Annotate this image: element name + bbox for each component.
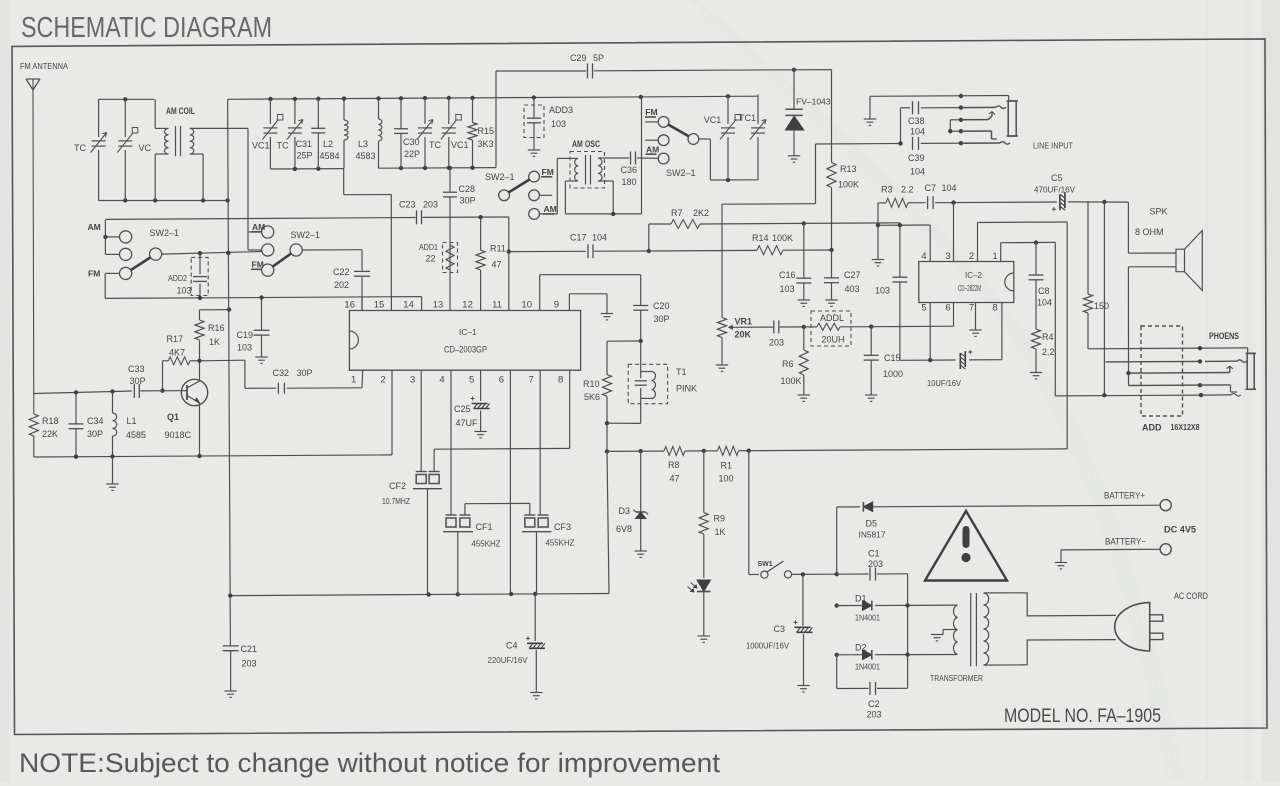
- svg-text:3: 3: [945, 251, 950, 262]
- svg-text:C15: C15: [884, 353, 901, 363]
- svg-text:103: 103: [177, 286, 192, 296]
- svg-text:R14: R14: [752, 233, 769, 243]
- svg-text:L3: L3: [358, 139, 368, 149]
- svg-text:SW2–1: SW2–1: [150, 228, 180, 238]
- svg-text:T1: T1: [676, 367, 687, 377]
- svg-text:20UH: 20UH: [822, 335, 845, 345]
- svg-text:47UF: 47UF: [456, 418, 479, 428]
- svg-text:202: 202: [334, 280, 349, 290]
- svg-text:FV–1043: FV–1043: [796, 97, 831, 107]
- svg-text:R8: R8: [668, 460, 680, 470]
- svg-text:SW1: SW1: [758, 561, 773, 568]
- svg-text:3: 3: [410, 375, 415, 386]
- svg-text:R16: R16: [208, 323, 225, 333]
- svg-text:TC: TC: [277, 141, 289, 151]
- svg-text:8 OHM: 8 OHM: [1135, 227, 1164, 237]
- svg-text:C20: C20: [653, 301, 670, 311]
- svg-text:8: 8: [558, 375, 563, 386]
- svg-text:C3: C3: [774, 624, 786, 634]
- svg-text:100K: 100K: [781, 376, 802, 386]
- svg-text:R15: R15: [478, 126, 495, 136]
- svg-text:103: 103: [875, 286, 890, 296]
- svg-text:10UF/16V: 10UF/16V: [927, 378, 961, 388]
- svg-text:104: 104: [910, 127, 925, 137]
- svg-text:VR1: VR1: [735, 317, 753, 327]
- svg-text:6V8: 6V8: [616, 524, 632, 534]
- svg-text:SPK: SPK: [1150, 207, 1168, 217]
- svg-text:C7: C7: [925, 183, 937, 193]
- svg-text:203: 203: [242, 659, 257, 669]
- svg-text:12: 12: [462, 300, 473, 311]
- svg-text:R7: R7: [671, 208, 683, 218]
- svg-text:14: 14: [403, 300, 414, 311]
- svg-text:AM: AM: [252, 222, 265, 232]
- svg-text:R10: R10: [583, 379, 600, 389]
- svg-text:25P: 25P: [297, 151, 313, 161]
- svg-text:C39: C39: [908, 153, 925, 163]
- svg-text:13: 13: [433, 300, 444, 311]
- svg-text:30P: 30P: [87, 429, 103, 439]
- svg-text:BATTERY+: BATTERY+: [1104, 491, 1145, 501]
- svg-text:203: 203: [423, 200, 438, 210]
- svg-text:150: 150: [1094, 301, 1109, 311]
- svg-text:R6: R6: [782, 359, 794, 369]
- svg-text:LINE INPUT: LINE INPUT: [1033, 141, 1074, 151]
- svg-text:100K: 100K: [838, 180, 859, 190]
- svg-text:FM: FM: [252, 260, 264, 270]
- svg-text:10.7MHZ: 10.7MHZ: [382, 496, 410, 506]
- svg-text:DC 4V5: DC 4V5: [1164, 525, 1196, 535]
- svg-text:104: 104: [910, 167, 925, 177]
- svg-text:30P: 30P: [654, 314, 670, 324]
- svg-text:470UF/16V: 470UF/16V: [1034, 185, 1075, 195]
- svg-text:C16: C16: [779, 270, 796, 280]
- svg-text:1: 1: [992, 251, 997, 262]
- svg-text:C5: C5: [1051, 173, 1063, 183]
- svg-text:15: 15: [374, 300, 385, 311]
- svg-text:Q1: Q1: [167, 412, 179, 422]
- svg-text:22P: 22P: [404, 149, 420, 159]
- svg-text:C27: C27: [844, 270, 861, 280]
- svg-text:1: 1: [351, 375, 356, 386]
- svg-text:100K: 100K: [772, 233, 793, 243]
- svg-text:AC CORD: AC CORD: [1174, 591, 1208, 601]
- svg-text:D3: D3: [619, 506, 631, 516]
- svg-text:C4: C4: [506, 641, 518, 651]
- svg-text:ADD1: ADD1: [419, 242, 438, 252]
- svg-text:TC1: TC1: [739, 113, 756, 123]
- svg-text:4584: 4584: [320, 151, 340, 161]
- svg-text:103: 103: [551, 119, 566, 129]
- svg-text:103: 103: [780, 284, 795, 294]
- svg-text:C31: C31: [296, 139, 313, 149]
- svg-text:C23: C23: [399, 200, 416, 210]
- svg-text:2.2: 2.2: [1042, 347, 1055, 357]
- svg-text:FM: FM: [542, 167, 554, 177]
- svg-text:C19: C19: [237, 330, 254, 340]
- svg-text:C36: C36: [621, 165, 638, 175]
- svg-text:SW2–1: SW2–1: [666, 168, 696, 178]
- svg-text:30P: 30P: [297, 368, 313, 378]
- svg-text:C22: C22: [333, 267, 350, 277]
- svg-text:1K: 1K: [715, 527, 726, 537]
- svg-text:CF2: CF2: [389, 481, 406, 491]
- svg-text:IN5817: IN5817: [859, 530, 886, 540]
- svg-text:2: 2: [969, 251, 974, 262]
- svg-text:FM: FM: [88, 269, 100, 279]
- svg-text:22K: 22K: [42, 429, 58, 439]
- svg-text:IC–2: IC–2: [965, 271, 982, 280]
- svg-text:455KHZ: 455KHZ: [472, 539, 501, 549]
- svg-text:3K3: 3K3: [478, 139, 494, 149]
- svg-text:C38: C38: [908, 116, 925, 126]
- svg-text:R18: R18: [42, 416, 59, 426]
- svg-text:103: 103: [237, 343, 252, 353]
- svg-text:PHOENS: PHOENS: [1209, 331, 1239, 341]
- svg-text:C2: C2: [868, 699, 880, 709]
- svg-text:TRANSFORMER: TRANSFORMER: [930, 673, 983, 683]
- svg-text:7: 7: [529, 375, 534, 386]
- svg-text:22: 22: [426, 254, 436, 264]
- svg-text:IC–1: IC–1: [459, 327, 477, 337]
- svg-text:100: 100: [719, 474, 734, 484]
- svg-text:104: 104: [942, 183, 957, 193]
- svg-text:104: 104: [1037, 298, 1052, 308]
- svg-text:1N4001: 1N4001: [855, 612, 880, 622]
- svg-text:7: 7: [969, 303, 974, 314]
- svg-text:5K6: 5K6: [584, 392, 600, 402]
- svg-text:5: 5: [921, 303, 926, 314]
- svg-text:R1: R1: [721, 461, 733, 471]
- svg-text:VC: VC: [139, 143, 152, 153]
- svg-text:FM: FM: [645, 107, 657, 117]
- svg-text:455KHZ: 455KHZ: [546, 538, 575, 548]
- svg-text:AM: AM: [544, 204, 557, 214]
- svg-text:SW2–1: SW2–1: [485, 172, 515, 182]
- svg-text:203: 203: [867, 710, 882, 720]
- svg-text:R4: R4: [1042, 332, 1054, 342]
- svg-text:6: 6: [945, 303, 950, 314]
- svg-text:5: 5: [469, 375, 474, 386]
- svg-text:1K: 1K: [209, 337, 220, 347]
- svg-text:C34: C34: [87, 416, 104, 426]
- svg-text:MODEL NO. FA–1905: MODEL NO. FA–1905: [1004, 705, 1161, 727]
- svg-text:2.2: 2.2: [901, 185, 914, 195]
- svg-text:47: 47: [492, 260, 502, 270]
- svg-text:9018C: 9018C: [165, 430, 192, 440]
- svg-text:VC1: VC1: [704, 115, 722, 125]
- svg-text:11: 11: [492, 300, 502, 311]
- svg-text:TC: TC: [74, 143, 86, 153]
- svg-text:30P: 30P: [460, 196, 476, 206]
- svg-text:R13: R13: [840, 164, 857, 174]
- svg-text:R9: R9: [714, 514, 726, 524]
- svg-text:AM: AM: [646, 145, 659, 155]
- svg-text:VC1: VC1: [451, 140, 469, 150]
- svg-text:104: 104: [592, 233, 607, 243]
- svg-text:4: 4: [921, 251, 926, 262]
- svg-text:L1: L1: [127, 416, 137, 426]
- svg-text:2K2: 2K2: [693, 208, 709, 218]
- svg-text:C17: C17: [570, 233, 587, 243]
- svg-text:CD–2003GP: CD–2003GP: [444, 345, 487, 355]
- svg-text:SCHEMATIC DIAGRAM: SCHEMATIC DIAGRAM: [21, 12, 272, 44]
- svg-text:20K: 20K: [735, 330, 752, 340]
- svg-text:SW2–1: SW2–1: [291, 230, 321, 240]
- svg-text:47: 47: [670, 474, 680, 484]
- svg-text:BATTERY−: BATTERY−: [1105, 537, 1146, 547]
- svg-text:6: 6: [499, 375, 504, 386]
- svg-text:9: 9: [554, 300, 559, 311]
- svg-text:AM OSC: AM OSC: [572, 139, 600, 149]
- svg-text:C28: C28: [459, 184, 476, 194]
- svg-text:R3: R3: [881, 185, 893, 195]
- svg-text:L2: L2: [323, 139, 333, 149]
- svg-text:4585: 4585: [126, 430, 146, 440]
- svg-text:2: 2: [380, 375, 385, 386]
- svg-text:R17: R17: [167, 334, 184, 344]
- svg-text:ADD: ADD: [1142, 423, 1162, 433]
- svg-text:1N4001: 1N4001: [855, 661, 880, 671]
- svg-text:203: 203: [769, 338, 784, 348]
- svg-text:C25: C25: [454, 404, 471, 414]
- svg-text:180: 180: [622, 177, 637, 187]
- svg-text:C8: C8: [1038, 286, 1050, 296]
- svg-text:16: 16: [344, 300, 355, 311]
- svg-text:VC1: VC1: [252, 141, 270, 151]
- svg-text:4583: 4583: [356, 151, 376, 161]
- svg-text:C1: C1: [868, 549, 880, 559]
- svg-text:TC: TC: [429, 140, 441, 150]
- svg-text:AM COIL: AM COIL: [166, 106, 195, 116]
- svg-text:C32: C32: [273, 368, 290, 378]
- svg-text:ADD2: ADD2: [168, 273, 187, 283]
- svg-text:4: 4: [439, 375, 444, 386]
- svg-text:30P: 30P: [130, 376, 146, 386]
- svg-text:5P: 5P: [593, 53, 604, 63]
- svg-text:R11: R11: [490, 244, 506, 254]
- svg-text:4K7: 4K7: [169, 348, 185, 358]
- svg-text:C29: C29: [570, 53, 587, 63]
- svg-text:CF3: CF3: [554, 522, 571, 532]
- svg-text:220UF/16V: 220UF/16V: [488, 655, 528, 665]
- svg-text:1000: 1000: [883, 369, 903, 379]
- svg-text:403: 403: [845, 284, 860, 294]
- svg-text:AM: AM: [88, 222, 101, 232]
- svg-text:C21: C21: [241, 644, 258, 654]
- svg-text:16X12X8: 16X12X8: [1171, 422, 1200, 432]
- svg-text:ADDL: ADDL: [820, 313, 844, 323]
- svg-text:FM ANTENNA: FM ANTENNA: [20, 61, 68, 71]
- svg-text:CD–2822M: CD–2822M: [958, 284, 981, 293]
- svg-text:C30: C30: [403, 137, 420, 147]
- svg-text:8: 8: [992, 303, 997, 314]
- svg-text:C33: C33: [128, 364, 145, 374]
- svg-text:10: 10: [521, 300, 532, 311]
- svg-text:D5: D5: [866, 519, 878, 529]
- svg-text:NOTE:Subject to change withou: NOTE:Subject to change without notice fo…: [19, 748, 721, 778]
- svg-text:1000UF/16V: 1000UF/16V: [746, 641, 789, 651]
- svg-text:ADD3: ADD3: [549, 105, 573, 115]
- svg-text:CF1: CF1: [476, 522, 493, 532]
- svg-text:PINK: PINK: [676, 384, 697, 394]
